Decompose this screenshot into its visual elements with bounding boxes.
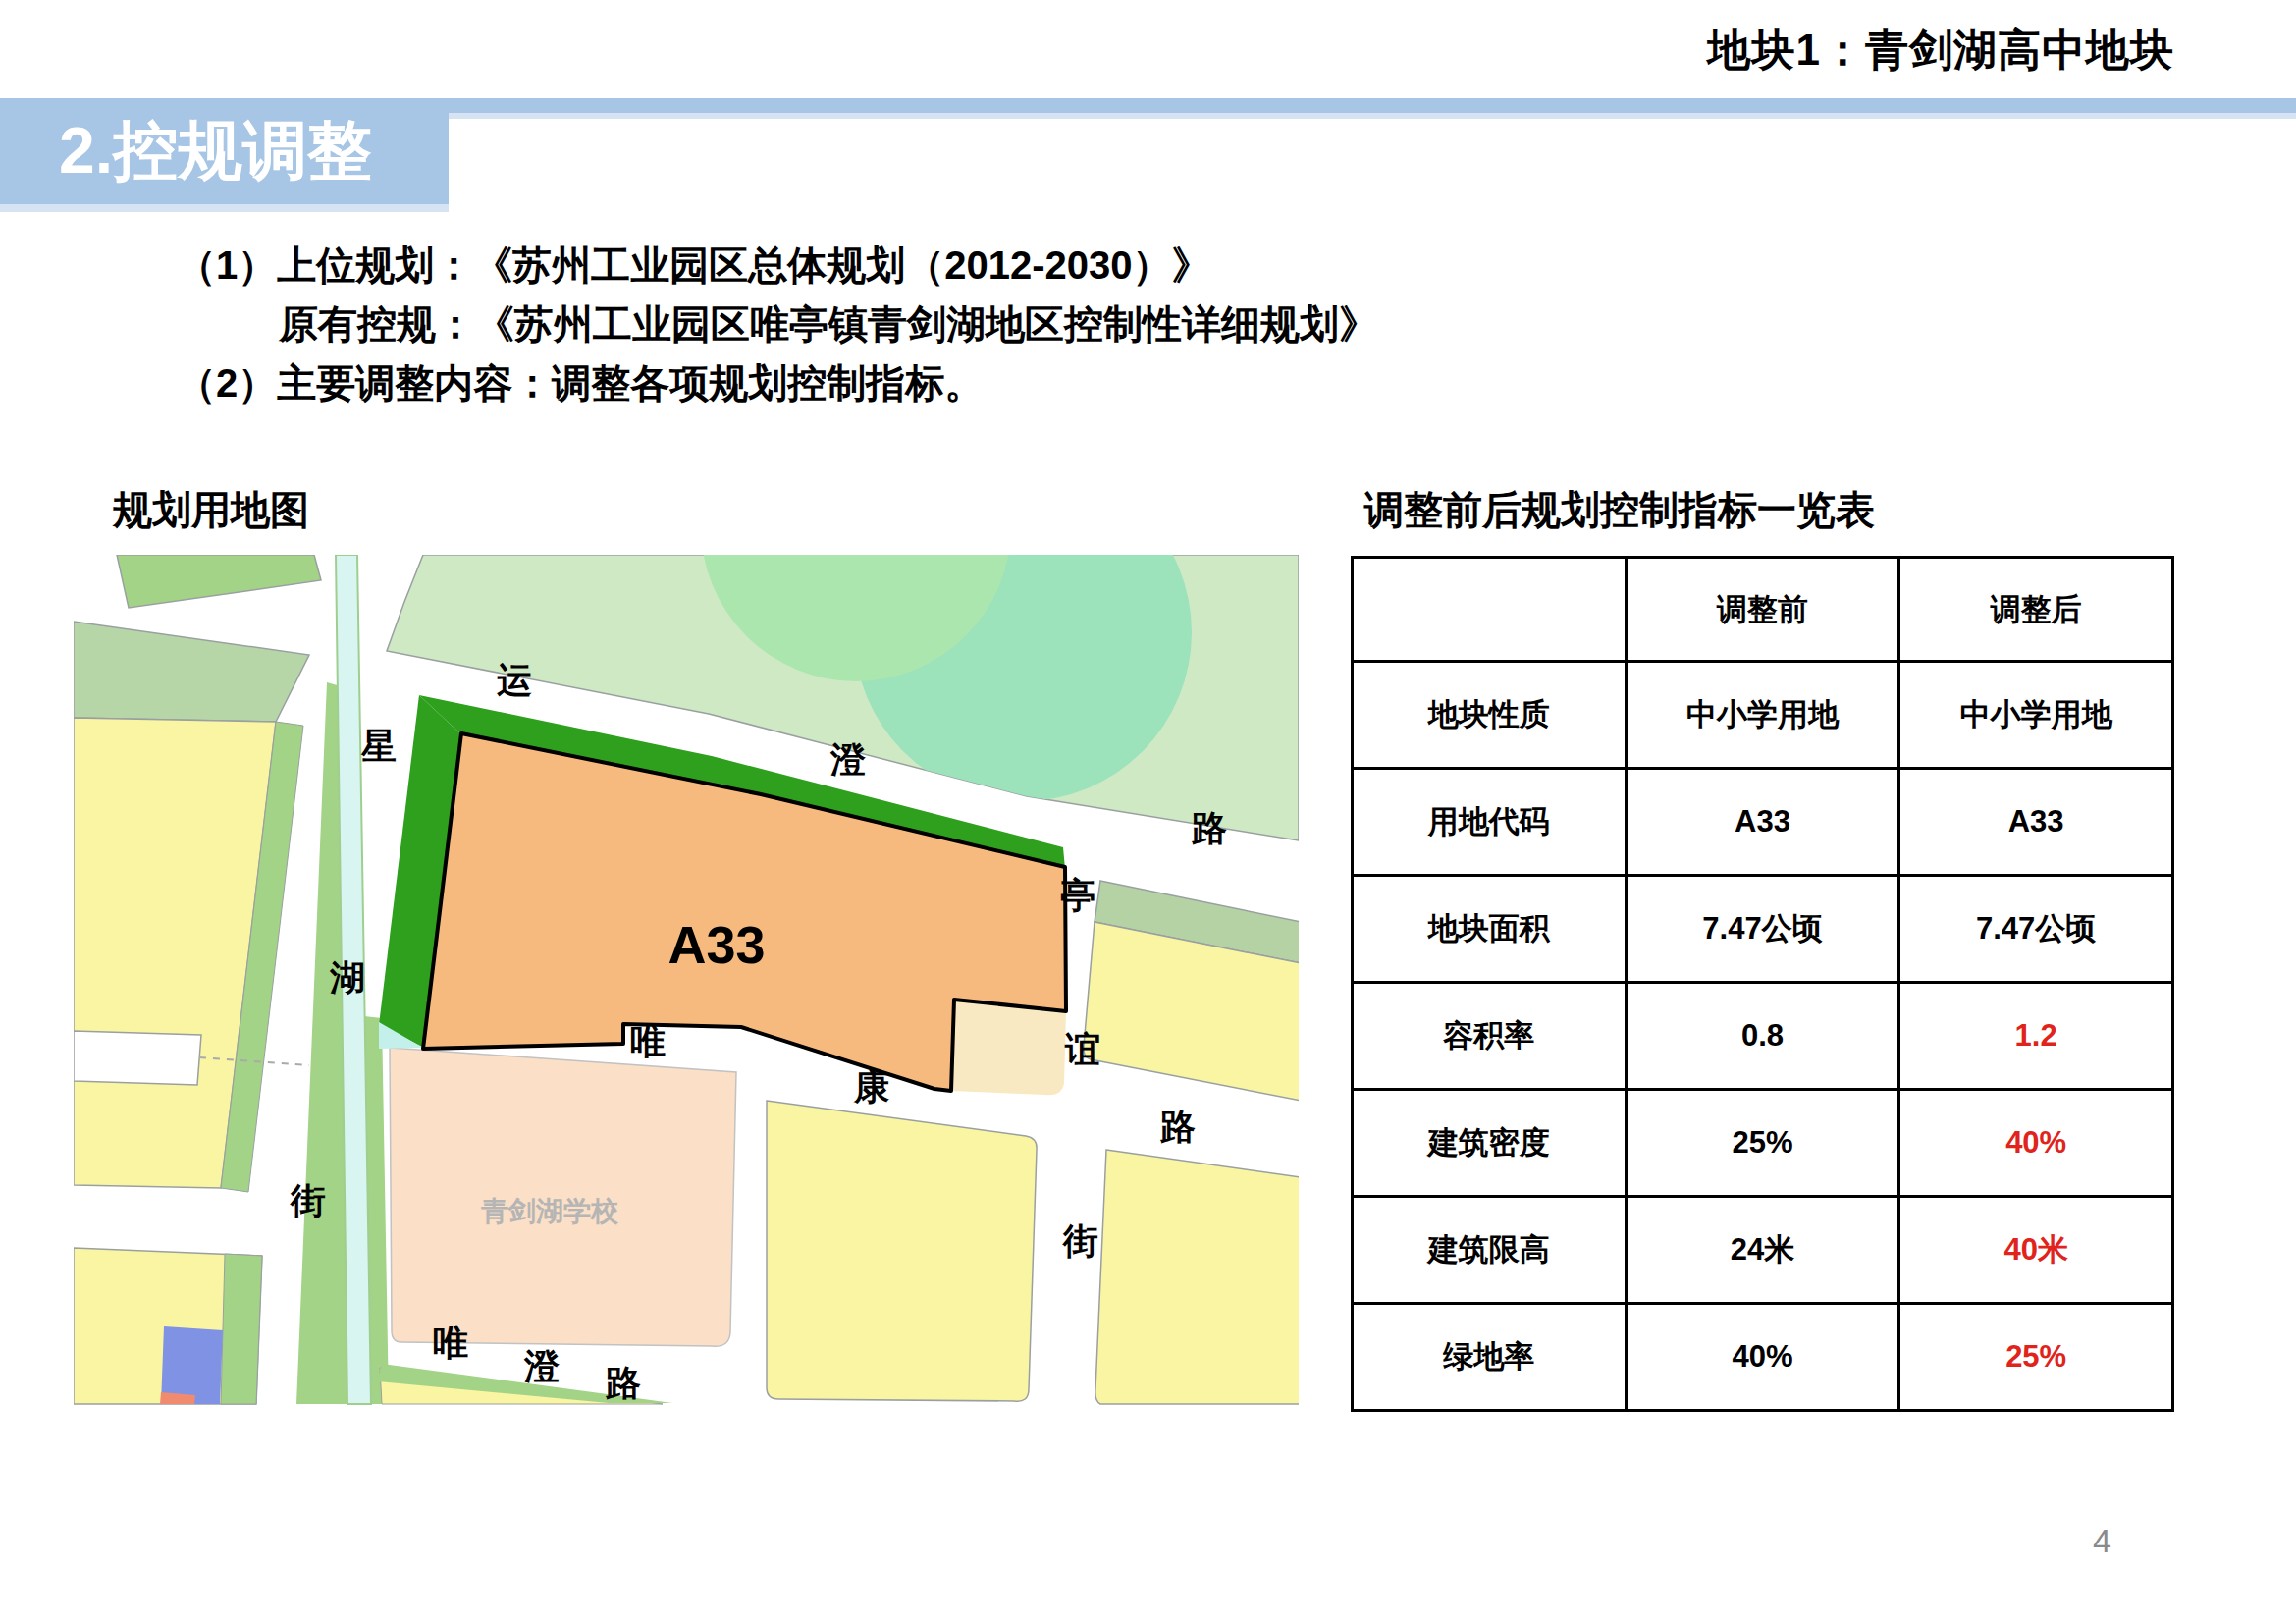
parcel-greenstrip-southwest <box>221 1254 262 1404</box>
table-cell: 建筑密度 <box>1353 1090 1627 1197</box>
road-label: 谊 <box>1064 1029 1100 1069</box>
table-cell: 24米 <box>1626 1197 1899 1304</box>
road-label: 亭 <box>1060 875 1095 915</box>
road-label: 路 <box>1159 1107 1196 1147</box>
table-header-row: 调整前调整后 <box>1353 558 2173 662</box>
section-title-underline <box>0 204 449 212</box>
table-cell: 7.47公顷 <box>1626 876 1899 983</box>
table-row: 容积率0.81.2 <box>1353 983 2173 1090</box>
table-cell: A33 <box>1626 769 1899 876</box>
school-label: 青剑湖学校 <box>481 1196 619 1226</box>
table-cell: 调整后 <box>1899 558 2173 662</box>
table-cell: 7.47公顷 <box>1899 876 2173 983</box>
a33-plot-code: A33 <box>667 915 765 974</box>
indicator-table-body: 调整前调整后地块性质中小学用地中小学用地用地代码A33A33地块面积7.47公顷… <box>1353 558 2173 1411</box>
slide-plot-label: 地块1：青剑湖高中地块 <box>1708 22 2174 80</box>
table-cell: 中小学用地 <box>1626 662 1899 769</box>
table-cell: 25% <box>1626 1090 1899 1197</box>
indicator-table: 调整前调整后地块性质中小学用地中小学用地用地代码A33A33地块面积7.47公顷… <box>1351 556 2174 1412</box>
road-label: 路 <box>605 1363 641 1403</box>
road-label: 澄 <box>829 739 866 780</box>
table-cell: 25% <box>1899 1304 2173 1411</box>
table-row: 建筑密度25%40% <box>1353 1090 2173 1197</box>
table-cell: 40% <box>1626 1304 1899 1411</box>
road-label: 运 <box>497 660 532 700</box>
body-line-2: 原有控规：《苏州工业园区唯亭镇青剑湖地区控制性详细规划》 <box>177 295 1378 353</box>
road-notch-west <box>74 1031 201 1085</box>
parcel-green-topleft <box>117 555 321 608</box>
table-row: 地块面积7.47公顷7.47公顷 <box>1353 876 2173 983</box>
road-label: 星 <box>360 726 397 766</box>
parcel-blue-southwest <box>161 1326 223 1404</box>
table-title: 调整前后规划控制指标一览表 <box>1364 483 1875 537</box>
parcel-yellow-east-lower <box>1095 1150 1299 1404</box>
section-title: 2.控规调整 <box>0 107 372 195</box>
road-label: 街 <box>1062 1220 1098 1261</box>
table-cell: 地块面积 <box>1353 876 1627 983</box>
road-label: 湖 <box>329 957 365 998</box>
table-row: 绿地率40%25% <box>1353 1304 2173 1411</box>
page-number: 4 <box>2093 1522 2111 1560</box>
body-line-3: （2）主要调整内容：调整各项规划控制指标。 <box>177 353 1378 412</box>
table-cell: 40米 <box>1899 1197 2173 1304</box>
table-cell: 0.8 <box>1626 983 1899 1090</box>
road-label: 路 <box>1191 808 1227 848</box>
road-label: 澄 <box>523 1346 560 1386</box>
body-line-1: （1）上位规划：《苏州工业园区总体规划（2012-2030）》 <box>177 236 1378 295</box>
road-label: 街 <box>290 1180 326 1220</box>
table-cell: 1.2 <box>1899 983 2173 1090</box>
body-text: （1）上位规划：《苏州工业园区总体规划（2012-2030）》 原有控规：《苏州… <box>177 236 1378 412</box>
table-row: 建筑限高24米40米 <box>1353 1197 2173 1304</box>
table-cell: A33 <box>1899 769 2173 876</box>
table-cell: 地块性质 <box>1353 662 1627 769</box>
road-label: 康 <box>853 1066 889 1107</box>
table-cell <box>1353 558 1627 662</box>
table-row: 用地代码A33A33 <box>1353 769 2173 876</box>
parcel-beige-notch <box>951 1000 1066 1095</box>
road-label: 唯 <box>433 1323 468 1363</box>
parcel-graygreen-topleft <box>74 622 309 722</box>
table-cell: 绿地率 <box>1353 1304 1627 1411</box>
land-use-map-svg: A33 青剑湖学校 星湖街运澄路亭谊街唯康路唯澄路 <box>74 555 1299 1405</box>
land-use-map: A33 青剑湖学校 星湖街运澄路亭谊街唯康路唯澄路 <box>74 555 1299 1405</box>
section-title-box: 2.控规调整 <box>0 98 449 204</box>
table-cell: 中小学用地 <box>1899 662 2173 769</box>
table-cell: 用地代码 <box>1353 769 1627 876</box>
table-cell: 建筑限高 <box>1353 1197 1627 1304</box>
table-cell: 调整前 <box>1626 558 1899 662</box>
road-label: 唯 <box>630 1021 666 1061</box>
parcel-yellow-mid <box>767 1101 1037 1401</box>
table-cell: 40% <box>1899 1090 2173 1197</box>
table-row: 地块性质中小学用地中小学用地 <box>1353 662 2173 769</box>
table-cell: 容积率 <box>1353 983 1627 1090</box>
map-title: 规划用地图 <box>113 483 309 537</box>
